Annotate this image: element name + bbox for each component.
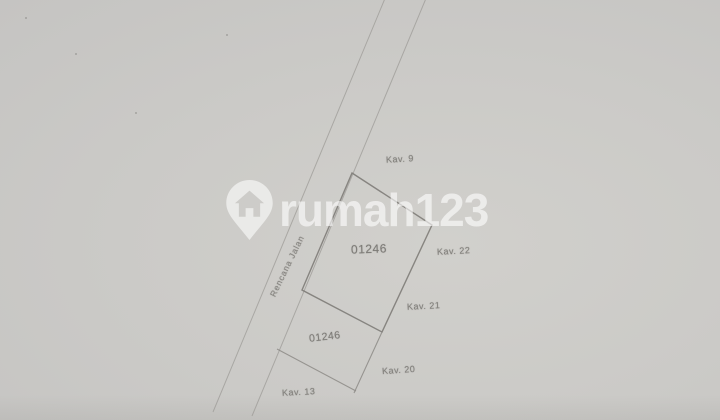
plot-edge-extension-line <box>354 332 382 393</box>
road-left-line <box>213 0 386 412</box>
site-plan-drawing <box>0 0 720 420</box>
plot-number-main: 01246 <box>351 241 387 256</box>
scan-speck <box>75 53 77 55</box>
scan-speck <box>25 17 27 19</box>
parcel-label-kav-21: Kav. 21 <box>407 300 441 312</box>
parcel-label-kav-22: Kav. 22 <box>437 245 471 257</box>
lower-boundary-line <box>277 349 356 391</box>
parcel-label-kav-13: Kav. 13 <box>282 386 316 398</box>
scan-speck <box>135 112 137 114</box>
scanned-site-plan: Kav. 9 Kav. 22 Kav. 21 Kav. 20 Kav. 13 0… <box>0 0 720 420</box>
road-right-line <box>252 0 427 416</box>
scan-speck <box>226 34 228 36</box>
parcel-label-kav-9: Kav. 9 <box>386 153 414 164</box>
